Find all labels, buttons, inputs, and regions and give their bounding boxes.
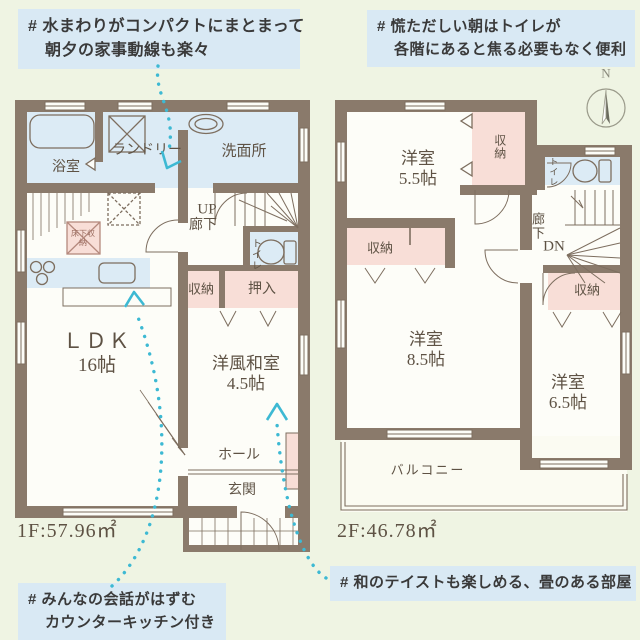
room-label-washroom: 洗面所 [221,143,266,160]
room-label-corridor-1f: 廊下 [189,218,217,234]
room-label-tatami-size: 4.5帖 [227,374,265,394]
room-label-2f-corridor: 廊下 [529,208,544,244]
callout-counter-kitchen: # みんなの会話がはずむ カウンターキッチン付き [18,583,226,640]
callout-water-area: # 水まわりがコンパクトにまとまって 朝夕の家事動線も楽々 [18,9,300,69]
room-label-2f-85-size: 8.5帖 [407,350,445,370]
room-label-tatami: 洋風和室 [212,354,280,374]
floorplan-2f-drawing [335,100,632,525]
room-label-2f-85: 洋室 [409,330,443,350]
callout-line: # 慌ただしい朝はトイレが [377,16,625,39]
room-label-2f-closet-b: 収納 [367,242,393,257]
room-label-underfloor-storage: 床下収納 [68,229,98,247]
floorplan-1f: 浴室 ランドリー 洗面所 UP 廊下 トイレ 収納 押入 ＬＤＫ 16帖 洋風和… [15,100,310,555]
room-label-2f-toilet: トイレ [548,156,558,188]
room-label-balcony: バルコニー [391,464,466,479]
callout-line: カウンターキッチン付き [28,612,216,635]
floorplan-page: # 水まわりがコンパクトにまとまって 朝夕の家事動線も楽々 # 慌ただしい朝はト… [0,0,640,640]
callout-line: # 和のテイストも楽しめる、畳のある部屋 [340,572,626,595]
callout-line: 各階にあると焦る必要もなく便利 [377,39,625,62]
compass: N [580,66,632,132]
callout-line: # 水まわりがコンパクトにまとまって [28,15,290,39]
floorplan-2f: 洋室 5.5帖 収納 トイレ 廊下 DN 収納 洋室 8.5帖 収納 洋室 6.… [335,100,632,525]
floor2-rooms [339,104,628,512]
room-label-2f-closet-c: 収納 [574,284,600,299]
room-label-bath: 浴室 [52,160,80,176]
room-label-laundry: ランドリー [112,143,182,159]
room-label-2f-55: 洋室 [401,149,435,169]
floor2-area-label: 2F:46.78㎡ [337,520,438,543]
room-label-storage-1f: 収納 [188,283,214,298]
callout-line: 朝夕の家事動線も楽々 [28,39,290,63]
floor1-area-label: 1F:57.96㎡ [17,520,118,543]
room-label-2f-65: 洋室 [551,373,585,393]
room-label-oshiire: 押入 [248,282,276,298]
room-label-entrance: 玄関 [228,483,256,499]
room-label-ldk-size: 16帖 [78,355,116,377]
callout-toilet: # 慌ただしい朝はトイレが 各階にあると焦る必要もなく便利 [367,10,635,67]
callout-line: # みんなの会話がはずむ [28,589,216,612]
room-label-2f-closet-a: 収納 [492,124,506,170]
room-label-toilet-1f: トイレ [249,235,261,273]
room-label-ldk: ＬＤＫ [63,329,132,353]
room-label-hall: ホール [218,448,260,464]
callout-tatami-room: # 和のテイストも楽しめる、畳のある部屋 [330,566,636,601]
compass-north-label: N [601,67,610,82]
room-label-2f-65-size: 6.5帖 [549,393,587,413]
room-label-up: UP [197,201,216,218]
room-label-2f-55-size: 5.5帖 [399,169,437,189]
room-label-2f-dn: DN [543,238,565,255]
